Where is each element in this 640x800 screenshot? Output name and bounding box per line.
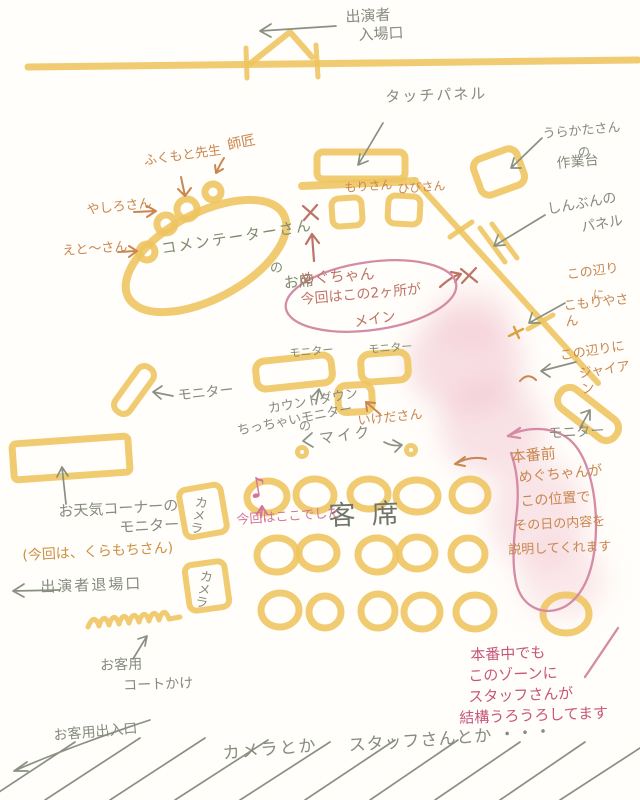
arrow-shisho xyxy=(215,158,224,173)
arrow-shimbun-panel xyxy=(494,215,545,246)
arrow-mic-left xyxy=(303,433,313,447)
coat-rack-shape xyxy=(88,612,180,627)
arrow-gian xyxy=(541,362,576,377)
seat-circle xyxy=(399,537,435,569)
top-wall xyxy=(28,60,638,67)
label-backstage-desk-3: 作業台 xyxy=(556,152,599,173)
seat-yashiro xyxy=(157,215,175,233)
monitor-center-right-shape xyxy=(360,351,409,382)
arrow-touch-panel xyxy=(358,123,383,165)
seat-circle xyxy=(357,537,397,574)
seat-shisho xyxy=(205,184,221,200)
seat-circle xyxy=(260,592,300,628)
monitor-left-shape xyxy=(111,363,157,417)
seat-circle xyxy=(299,537,337,569)
label-touch-panel: タッチパネル xyxy=(385,84,488,106)
label-performer-exit: 出演者退場口 xyxy=(40,574,143,596)
label-staff-zone-3: スタッフさんが xyxy=(468,684,574,706)
seat-circle xyxy=(404,595,440,629)
arrow-mic-right xyxy=(384,440,402,452)
seat-hibi xyxy=(387,195,420,225)
weather-monitor-shape xyxy=(12,436,130,480)
arrow-fukumoto xyxy=(178,177,191,196)
label-coat-rack-1: お客用 xyxy=(100,657,143,676)
seat-circle xyxy=(452,479,488,511)
label-megu-explain-1: 本番前 xyxy=(510,444,556,467)
pink-highlight-blob xyxy=(407,288,605,618)
seat-circle xyxy=(361,594,395,628)
seat-circle xyxy=(456,595,494,629)
label-staff-zone-2: このゾーンに xyxy=(468,664,558,686)
arrow-megu-up xyxy=(306,234,319,261)
mic-dot-left xyxy=(298,448,307,457)
seat-circle xyxy=(256,537,298,574)
entrance-door xyxy=(246,32,318,78)
seat-mori xyxy=(331,197,363,227)
mic-dot-right xyxy=(407,446,416,455)
label-monitor-right: モニター xyxy=(548,423,605,443)
label-performer-entrance-1: 出演者 xyxy=(345,6,391,27)
arrow-performer-entrance xyxy=(260,24,336,37)
label-coat-rack-2: コートかけ xyxy=(123,676,194,696)
hatch-zone xyxy=(0,738,640,800)
arc-mark xyxy=(520,376,536,381)
seat-circle xyxy=(309,596,341,628)
arrow-coat-rack xyxy=(133,636,147,659)
arrow-weather-monitor xyxy=(57,467,68,504)
label-staff-zone-1: 本番中でも xyxy=(470,643,546,664)
label-performer-entrance-2: 入場口 xyxy=(358,24,404,45)
arrow-monitor-left xyxy=(153,386,173,399)
label-weather-monitor: お天気コーナーの モニター xyxy=(30,496,180,541)
studio-layout-canvas: 出演者 入場口 タッチパネル うらかたさん の 作業台 しんぶんの パネル 師匠… xyxy=(0,0,640,800)
label-audience-seats: 客席 xyxy=(328,497,415,534)
x-mark-right xyxy=(461,268,477,283)
backstage-desk-shape xyxy=(471,146,527,197)
label-commentator-2: の xyxy=(270,261,283,277)
seat-circle xyxy=(451,538,485,570)
seat-fukumoto xyxy=(177,199,197,219)
